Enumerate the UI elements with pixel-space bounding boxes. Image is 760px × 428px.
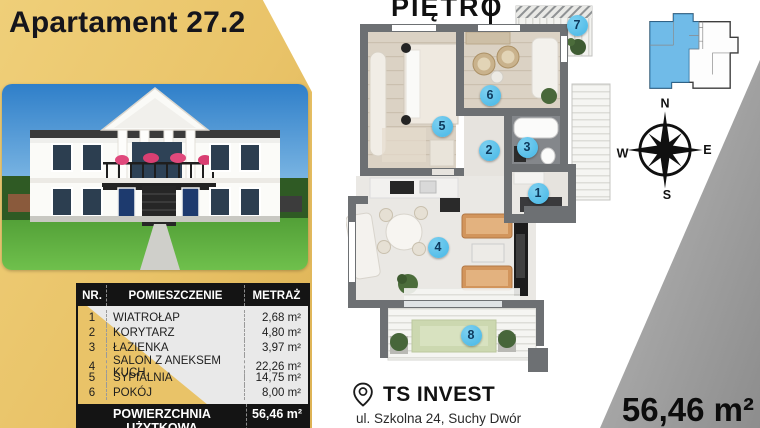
table-row: 2KORYTARZ4,80 m²	[78, 325, 308, 340]
col-header-nr: NR.	[78, 290, 106, 302]
table-row: 4SALON Z ANEKSEM KUCH.22,26 m²	[78, 355, 308, 370]
room-marker-4: 4	[428, 237, 449, 258]
table-row: 3ŁAZIENKA3,97 m²	[78, 340, 308, 355]
room-marker-2: 2	[479, 140, 500, 161]
rooms-table-header: NR. POMIESZCZENIE METRAŻ	[78, 285, 308, 306]
table-row: 6POKÓJ8,00 m²	[78, 385, 308, 400]
room-name-cell: KORYTARZ	[106, 325, 244, 340]
room-area-cell: 8,00 m²	[244, 385, 308, 400]
house-photo	[2, 84, 308, 270]
developer-name: TS INVEST	[383, 383, 495, 407]
outdoor-stairs	[572, 84, 610, 200]
usable-area-value: 56,46 m²	[246, 404, 308, 428]
rooms-table-footer: POWIERZCHNIA UŻYTKOWA 56,46 m²	[78, 404, 308, 428]
floor-plan-svg	[346, 0, 614, 374]
floor-plan	[346, 0, 614, 374]
room-number-cell: 1	[78, 312, 106, 324]
compass-w: W	[617, 147, 629, 161]
room-marker-7: 7	[567, 15, 588, 36]
door-left	[118, 188, 135, 219]
compass-s: S	[663, 188, 671, 202]
apartment-title: Apartament 27.2	[9, 6, 245, 40]
miniplan-svg	[634, 6, 752, 96]
room-area-cell: 2,68 m²	[244, 310, 308, 325]
room-marker-5: 5	[432, 116, 453, 137]
room-area-cell: 4,80 m²	[244, 325, 308, 340]
room-marker-3: 3	[517, 137, 538, 158]
room-marker-6: 6	[480, 85, 501, 106]
rooms-table-body-rows: 1WIATROŁAP2,68 m²2KORYTARZ4,80 m²3ŁAZIEN…	[78, 310, 308, 400]
room-name-cell: POKÓJ	[106, 385, 244, 400]
room-area-cell: 14,75 m²	[244, 370, 308, 385]
room-number-cell: 6	[78, 387, 106, 399]
usable-area-label: POWIERZCHNIA UŻYTKOWA	[78, 404, 246, 428]
rooms-table-body: 1WIATROŁAP2,68 m²2KORYTARZ4,80 m²3ŁAZIEN…	[78, 306, 308, 404]
door-right	[182, 188, 199, 219]
room-marker-1: 1	[528, 183, 549, 204]
room-area-cell: 3,97 m²	[244, 340, 308, 355]
developer-block: TS INVEST ul. Szkolna 24, Suchy Dwór	[352, 381, 521, 426]
room-name-cell: WIATROŁAP	[106, 310, 244, 325]
col-header-room: POMIESZCZENIE	[106, 285, 244, 306]
compass-icon: N E S W	[612, 96, 718, 202]
house-illustration	[2, 84, 308, 270]
room-number-cell: 5	[78, 372, 106, 384]
col-header-area: METRAŻ	[244, 285, 308, 306]
developer-address: ul. Szkolna 24, Suchy Dwór	[356, 411, 521, 426]
rooms-table: NR. POMIESZCZENIE METRAŻ 1WIATROŁAP2,68 …	[76, 283, 310, 428]
flyer-page: Apartament 27.2 56,46 m²	[0, 0, 760, 428]
room-number-cell: 2	[78, 327, 106, 339]
compass-n: N	[660, 97, 669, 111]
location-pin-icon	[352, 381, 374, 408]
room-number-cell: 3	[78, 342, 106, 354]
table-row: 1WIATROŁAP2,68 m²	[78, 310, 308, 325]
room-name-cell: SYPIALNIA	[106, 370, 244, 385]
compass-e: E	[703, 143, 711, 157]
room-marker-8: 8	[461, 325, 482, 346]
room-name-cell: ŁAZIENKA	[106, 340, 244, 355]
total-area-label: 56,46 m²	[622, 391, 754, 428]
bedroom-5-furniture	[370, 43, 458, 166]
table-row: 5SYPIALNIA14,75 m²	[78, 370, 308, 385]
compass-rose: N E S W	[612, 96, 718, 202]
building-locator-miniplan	[634, 6, 752, 96]
